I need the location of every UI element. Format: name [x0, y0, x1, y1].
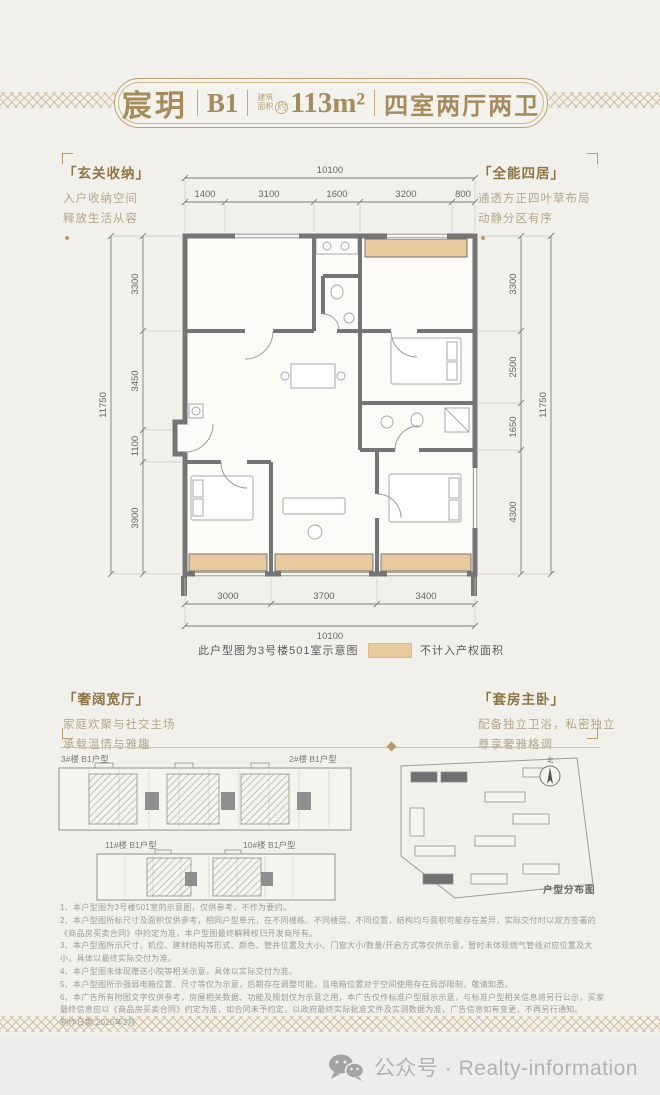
party-wall-stub	[181, 576, 187, 596]
dim-top-total: 10100	[317, 165, 343, 176]
poster-page: 宸玥 B1 建筑 面积 约 113m² 四室两厅两卫 「玄关收纳」 入户收纳空间…	[0, 0, 660, 1095]
room-configuration: 四室两厅两卫	[384, 86, 540, 121]
footer-bar: 公众号 · Realty-information	[0, 1038, 660, 1095]
svg-text:1400: 1400	[194, 189, 215, 200]
area-value: 113m²	[290, 87, 365, 120]
svg-text:4300: 4300	[508, 501, 519, 522]
compass-north-label: 北	[547, 756, 554, 764]
sofa	[283, 498, 345, 514]
divider-diamond	[387, 742, 397, 752]
svg-text:1650: 1650	[508, 416, 519, 437]
building-distribution: 3#楼 B1户型 2#楼 B1户型 11#楼 B1户型 10#楼 B1户型	[55, 752, 600, 902]
label-building-2: 2#楼 B1户型	[289, 754, 337, 764]
building-plate-2	[97, 850, 335, 900]
toilet	[411, 413, 423, 427]
header-separator	[247, 90, 248, 116]
party-wall-stub	[471, 576, 477, 596]
label-building-3: 3#楼 B1户型	[61, 754, 109, 764]
svg-text:3200: 3200	[395, 189, 416, 200]
area-label: 建筑 面积	[257, 94, 273, 112]
svg-text:3900: 3900	[130, 507, 141, 528]
floorplan-caption: 此户型图为3号楼501室示意图	[198, 642, 358, 658]
svg-text:3300: 3300	[130, 273, 141, 294]
footer-account-label: 公众号 · Realty-information	[374, 1052, 638, 1082]
toilet	[331, 285, 343, 299]
legend-swatch	[368, 643, 412, 658]
sink	[381, 416, 393, 428]
disclaimer-line: 3、本户型图所示尺寸、机位、建材结构等形式、颜色、管井位置及大小、门窗大小/数量…	[60, 940, 605, 966]
svg-text:3400: 3400	[415, 591, 436, 602]
svg-text:1600: 1600	[326, 189, 347, 200]
disclaimer-block: 1、本户型图为3号楼501室的示意图，仅供参考，不作为要约。 2、本户型图所标尺…	[60, 902, 605, 1030]
disclaimer-line: 4、本户型图未体现赠送小院等相关示意，具体以实际交付为准。	[60, 966, 605, 979]
site-plan: 北 户型分布图	[401, 756, 596, 898]
legend-label: 不计入产权面积	[420, 642, 504, 658]
unit-type: B1	[207, 88, 239, 119]
svg-text:3450: 3450	[130, 370, 141, 391]
header-separator	[197, 90, 198, 116]
wechat-icon	[328, 1053, 364, 1081]
coffee-table	[308, 525, 322, 539]
compass-icon: 北	[540, 756, 560, 786]
gold-dot	[65, 236, 69, 240]
disclaimer-line: 5、本户型图所示强弱电箱位置、尺寸等仅为示意，后期存在调整可能，且电箱位置对于空…	[60, 979, 605, 992]
disclaimer-line: 2、本户型图所标尺寸及面积仅供参考，相同户型单元，在不同楼栋、不同楼层、不同位置…	[60, 915, 605, 941]
kitchen-counter	[316, 238, 358, 254]
dim-left-total: 11750	[98, 392, 109, 418]
brand-name: 宸玥	[122, 81, 188, 125]
svg-text:3100: 3100	[258, 189, 279, 200]
dining-table	[291, 364, 335, 388]
header-badge: 宸玥 B1 建筑 面积 约 113m² 四室两厅两卫	[114, 78, 548, 128]
label-building-10: 10#楼 B1户型	[243, 840, 296, 850]
annotation-master-suite: 「套房主卧」 配备独立卫浴，私密独立 尊享奢雅格调	[478, 688, 648, 755]
svg-text:3300: 3300	[508, 273, 519, 294]
sink	[344, 313, 354, 323]
svg-text:3000: 3000	[217, 591, 238, 602]
header-separator	[374, 90, 375, 116]
svg-text:2500: 2500	[508, 356, 519, 377]
disclaimer-line: 6、本广告所有附图文字仅供参考，房屋相关数据、功能及规划仅为示意之用，本广告仅作…	[60, 992, 605, 1018]
building-plate-1	[59, 763, 351, 830]
svg-text:3700: 3700	[313, 591, 334, 602]
svg-text:1100: 1100	[130, 436, 141, 456]
annotation-wide-living-room: 「奢阔宽厅」 家庭欢聚与社交主场 承载温情与雅趣	[63, 688, 233, 755]
header-title-row: 宸玥 B1 建筑 面积 约 113m² 四室两厅两卫	[122, 81, 540, 125]
svg-text:800: 800	[455, 189, 471, 200]
disclaimer-line: 1、本户型图为3号楼501室的示意图，仅供参考，不作为要约。	[60, 902, 605, 915]
dim-bottom-total: 10100	[317, 631, 343, 642]
legend: 不计入产权面积	[368, 642, 504, 658]
approx-mark: 约	[275, 101, 288, 114]
section-divider	[60, 747, 600, 748]
lattice-border-bottom	[0, 1016, 660, 1032]
label-building-11: 11#楼 B1户型	[105, 840, 157, 850]
dim-right-total: 11750	[538, 392, 549, 418]
site-plan-label: 户型分布图	[542, 884, 596, 896]
floorplan-drawing: 10100 1400 3100 1600 3200 800 3300 3450 …	[95, 158, 565, 658]
